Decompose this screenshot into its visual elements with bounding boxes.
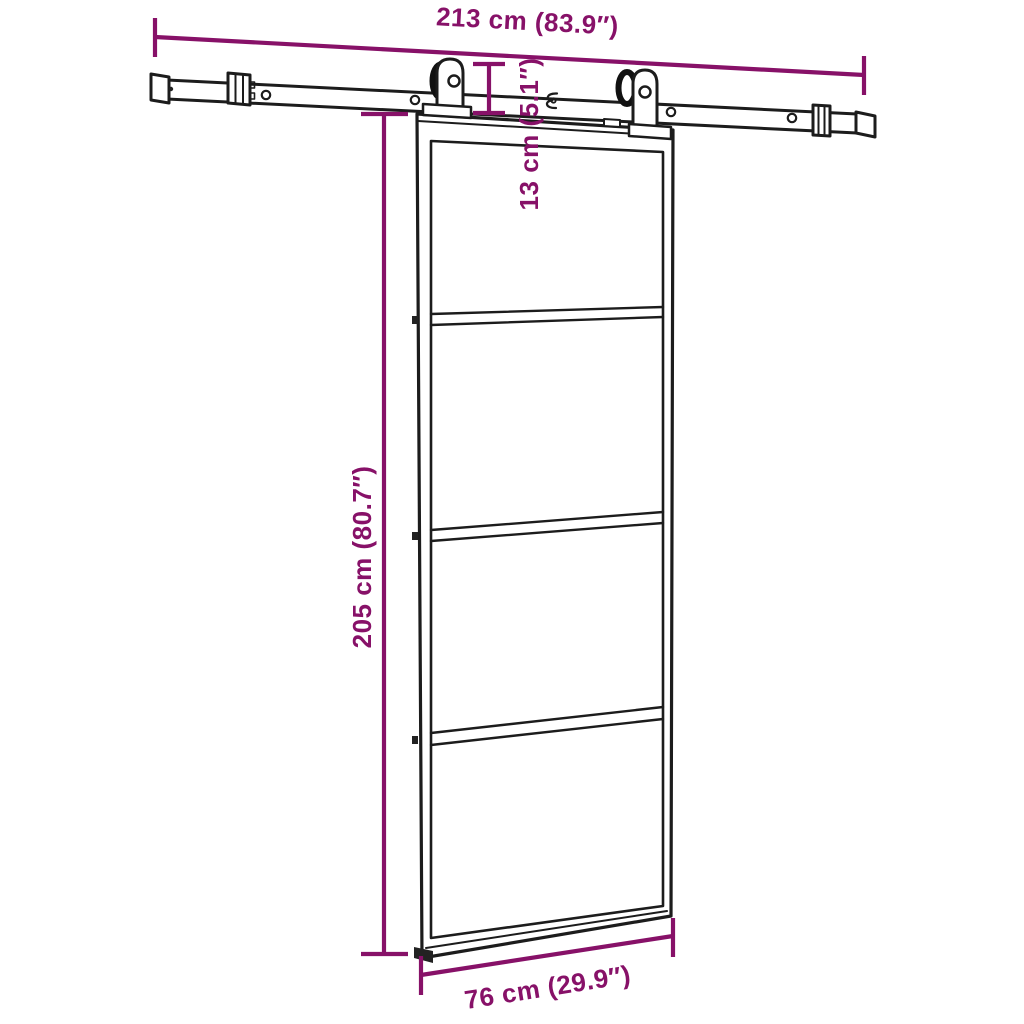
sliding-door [412,114,673,963]
dimension-door-height: 205 cm (80.7″) [347,114,408,954]
dimension-label-door-top-offset: 13 cm (5.1″) [514,58,544,211]
dimension-track-length: 213 cm (83.9″) [155,1,864,95]
stile-fixing-mark [412,736,418,744]
hanger-notch [604,119,620,127]
door-outer-frame [417,114,673,958]
rail-coupler-left [228,73,255,105]
diagram-canvas: 213 cm (83.9″) 13 cm (5.1″) 205 cm (80.7… [0,0,1024,1024]
roller-hanger-left [423,59,471,118]
hanger-bolt [640,87,651,98]
rail-hole [667,108,675,116]
hanger-bolt [449,76,460,87]
hanger-base-plate [423,104,471,118]
rail-end-cap-right [856,112,875,137]
dimension-label-door-height: 205 cm (80.7″) [347,466,377,649]
stile-fixing-mark [412,532,418,540]
rail-hole [262,91,270,99]
dimension-label-door-width: 76 cm (29.9″) [462,959,632,1015]
rail-hole [788,114,796,122]
rail-coupler-right [813,105,830,136]
dimension-line [155,37,864,75]
hanger-base-plate [629,124,671,139]
dimension-diagram: 213 cm (83.9″) 13 cm (5.1″) 205 cm (80.7… [0,0,1024,1024]
rail-screw-dot [169,87,173,91]
rail-end-cap-left [151,74,169,103]
rail-hole [411,96,419,104]
stile-fixing-mark [412,316,418,324]
dimension-label-track-length: 213 cm (83.9″) [435,1,619,41]
